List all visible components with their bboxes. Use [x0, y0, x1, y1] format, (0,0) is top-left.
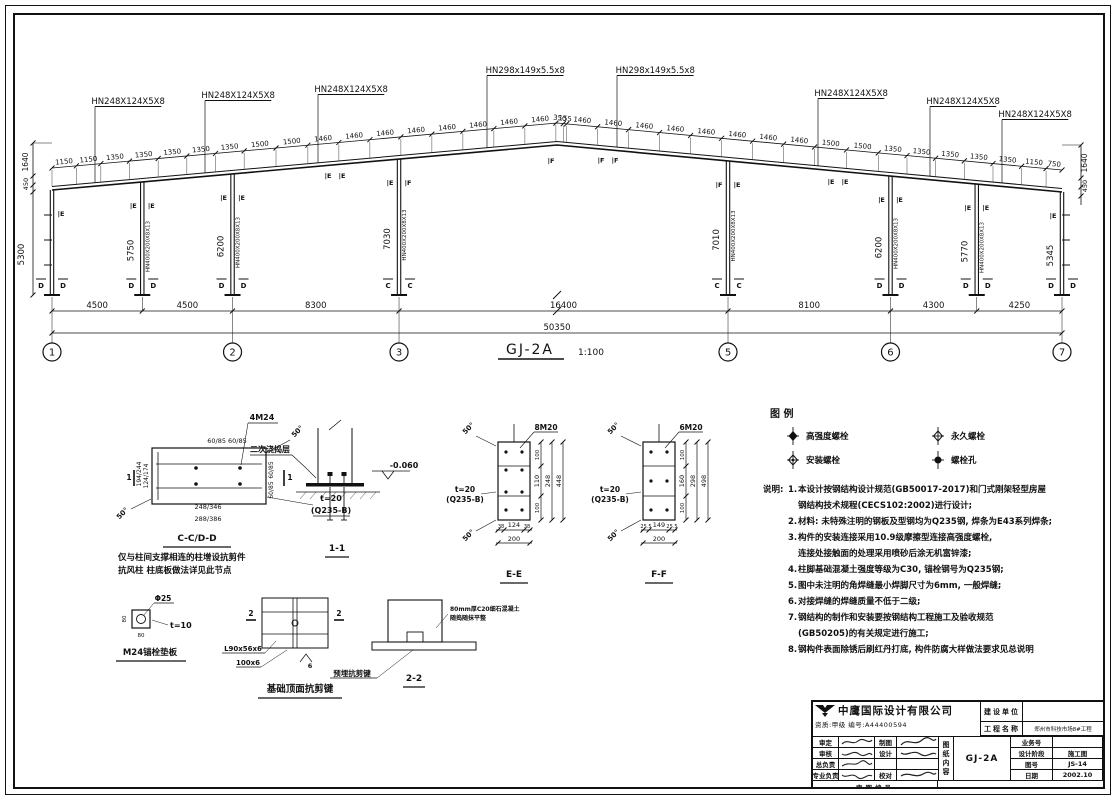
bay-dim-label: 16400 — [550, 301, 577, 311]
detail-callout: 随捣随抹平整 — [450, 614, 487, 622]
section-cut-label: 2 — [336, 609, 341, 618]
grid-bubble-label: 6 — [887, 348, 893, 359]
grid-bubble-label: 5 — [725, 348, 731, 359]
column-section-label: HN400X200X8X13 — [145, 220, 151, 272]
plate-thickness: t=20 — [455, 485, 475, 494]
column-height-dim: 6200 — [217, 236, 227, 258]
legend-item-label: 螺栓孔 — [951, 455, 977, 466]
field-label: 设计阶段 — [1011, 748, 1053, 759]
weld-size: 6 — [308, 662, 313, 670]
roof-dim-label: 1150 — [55, 157, 74, 167]
edge-dim-label: 450 — [22, 178, 30, 190]
legend-item-label: 安装螺栓 — [806, 455, 841, 466]
weld-angle: 50° — [606, 528, 621, 543]
roof-dim-label: 1150 — [1025, 158, 1044, 168]
member-mark: |E — [325, 172, 332, 181]
roof-dim-label: 1350 — [220, 142, 239, 152]
roof-dim-label: 1350 — [941, 150, 960, 160]
legend-title: 图 例 — [770, 407, 793, 420]
signature-scribble — [897, 737, 939, 748]
detail-dim: 288/386 — [194, 515, 221, 523]
detail-dim: 100 — [680, 502, 686, 513]
member-mark: |F — [612, 157, 619, 166]
roof-dim-label: 1460 — [666, 124, 685, 134]
detail-title: C-C/D-D — [177, 534, 216, 544]
member-mark: |F — [598, 157, 605, 166]
drawing-content-value: GJ-2A — [954, 737, 1011, 781]
frame-scale: 1:100 — [578, 348, 604, 358]
grid-bubble-label: 7 — [1059, 348, 1065, 359]
note-number: 2. — [788, 517, 797, 527]
detail-dim: 298 — [689, 475, 697, 487]
note-line: 图中未注明的角焊缝最小焊脚尺寸为6mm, 一般焊缝; — [798, 580, 1001, 591]
column-section-label: HN400X200X8X13 — [402, 209, 408, 261]
detail-dim: 100 — [680, 449, 686, 460]
note-number: 7. — [788, 613, 797, 623]
field-value: JS-14 — [1053, 759, 1103, 770]
roof-dim-label: 1460 — [635, 121, 654, 131]
roof-dim-label: 1500 — [282, 137, 301, 147]
member-mark: |E — [982, 204, 989, 213]
note-number: 4. — [788, 565, 797, 575]
field-value — [1053, 737, 1103, 748]
note-number: 3. — [788, 533, 797, 543]
bolt-symbol-high-strength — [789, 431, 798, 441]
bay-dim-label: 4500 — [177, 301, 199, 311]
detail-title: M24锚栓垫板 — [123, 647, 178, 658]
total-dim-label: 50350 — [543, 323, 570, 333]
beam-size-callout: HN248X124X5X8 — [91, 97, 164, 107]
detail-dim: 60/85 — [268, 481, 275, 498]
detail-dim: 194/244 — [136, 461, 143, 486]
roof-dim-label: 1500 — [821, 139, 840, 149]
beam-size-callout: HN298x149x5.5x8 — [486, 66, 565, 76]
roof-dim-label: 1460 — [376, 128, 395, 138]
field-value: 2002.10 — [1053, 770, 1103, 781]
roof-dim-label: 155 — [558, 114, 572, 123]
frame-title: GJ-2A — [506, 342, 554, 358]
detail-dim: 38 — [498, 524, 504, 530]
steel-grade: (Q235-B) — [446, 495, 484, 504]
company-logo-eagle-icon — [815, 704, 835, 717]
company-name: 中鹰国际设计有限公司 — [838, 703, 953, 718]
beam-size-callout: HN248X124X5X8 — [814, 89, 887, 99]
member-mark: |E — [387, 179, 394, 188]
role-label — [875, 759, 897, 770]
base-mark: C — [385, 282, 390, 290]
base-mark: C — [736, 282, 741, 290]
section-cut-label: 2 — [248, 609, 253, 618]
column-height-dim: 7010 — [712, 229, 722, 251]
grid-bubble-label: 2 — [229, 348, 235, 359]
weld-angle: 50° — [115, 506, 130, 521]
project-value: 郑州市科技市场8#工程 — [1023, 722, 1103, 736]
member-mark: |E — [130, 202, 137, 211]
beam-size-callout: HN248X124X5X8 — [998, 110, 1071, 120]
detail-dim: 80 — [122, 615, 128, 622]
member-mark: |E — [58, 210, 65, 219]
notes-header: 说明: — [763, 484, 783, 495]
edge-dim-label: 1640 — [21, 152, 30, 171]
base-mark: D — [963, 282, 969, 290]
member-mark: |E — [878, 196, 885, 205]
column-section-label: HN400X200X8X13 — [980, 222, 986, 274]
roof-dim-label: 1460 — [531, 115, 550, 125]
title-block-grid: 审定 制图 图纸内容 GJ-2A 业务号 审核 设计 设计阶段 施工图 总负责 … — [813, 737, 1103, 781]
member-mark: |E — [828, 178, 835, 187]
detail-dim: 100 — [535, 502, 541, 513]
weld-angle: 50° — [461, 421, 476, 436]
detail-dim: 80 — [138, 633, 145, 639]
note-line: 连接处接触面的处理采用喷砂后涂无机富锌漆; — [798, 548, 971, 559]
section-cut-label: 1 — [126, 473, 131, 482]
base-mark: D — [60, 282, 66, 290]
note-number: 8. — [788, 645, 797, 655]
column-height-dim: 5770 — [961, 241, 971, 263]
bay-dim-label: 8100 — [798, 301, 820, 311]
roof-dim-label: 1350 — [912, 147, 931, 157]
base-mark: D — [241, 282, 247, 290]
note-line: 对接焊缝的焊缝质量不低于二级; — [798, 596, 920, 607]
column-height-dim: 5300 — [17, 244, 27, 266]
detail-title: 基础顶面抗剪键 — [266, 683, 334, 695]
detail-callout: 二次浇捣层 — [250, 444, 290, 454]
detail-dim: 25.5 — [640, 524, 651, 530]
roof-dim-label: 1460 — [469, 120, 488, 130]
drawing-sheet: 1150115013501350135013501350150015001460… — [0, 0, 1116, 800]
detail-dim: 25.5 — [666, 524, 677, 530]
detail-callout: Φ25 — [155, 594, 172, 603]
column-height-dim: 5345 — [1046, 245, 1056, 267]
role-label: 校对 — [875, 770, 897, 781]
detail-callout: 6M20 — [679, 423, 702, 432]
plate-thickness: t=20 — [600, 485, 620, 494]
plate-thickness: t=20 — [320, 494, 342, 503]
detail-title: 1-1 — [329, 544, 345, 554]
plate-thickness: t=10 — [170, 621, 192, 630]
note-line: 钢构件表面除锈后刷红丹打底, 构件防腐大样做法要求见总说明 — [798, 644, 1034, 655]
field-label: 业务号 — [1011, 737, 1053, 748]
roof-dim-label: 1460 — [500, 117, 519, 127]
signature-scribble — [839, 737, 875, 748]
weld-angle: 50° — [290, 424, 305, 439]
detail-dim: 248/346 — [194, 503, 221, 511]
detail-dim: 100 — [535, 449, 541, 460]
detail-title: F-F — [651, 570, 667, 580]
note-number: 5. — [788, 581, 797, 591]
member-mark: |E — [964, 204, 971, 213]
review-number-label: 审图编号 — [813, 781, 938, 787]
detail-dim: 149 — [653, 521, 665, 529]
steel-grade: (Q235-B) — [311, 506, 351, 515]
roof-dim-label: 1350 — [884, 144, 903, 154]
beam-size-callout: HN248X124X5X8 — [201, 91, 274, 101]
elevation-value: -0.060 — [390, 461, 419, 470]
column-section-label: HN400X200X8X13 — [731, 210, 737, 262]
column-section-label: HN400X200X8X13 — [236, 216, 242, 268]
roof-dim-label: 1350 — [163, 147, 182, 157]
signature-scribble — [839, 759, 875, 770]
roof-dim-label: 1350 — [192, 145, 211, 155]
signature-scribble — [839, 770, 875, 781]
project-label: 工程名称 — [981, 722, 1023, 736]
detail-dim: 248 — [544, 475, 552, 487]
detail-callout: 80mm厚C20细石混凝土 — [450, 605, 520, 613]
member-mark: |E — [148, 202, 155, 211]
legend-item-label: 永久螺栓 — [950, 431, 986, 442]
member-mark: |E — [1050, 212, 1057, 221]
title-block: 中鹰国际设计有限公司 资质:甲级 编号:A44400594 建设单位 工程名称 … — [811, 700, 1103, 787]
member-mark: |F — [716, 181, 723, 190]
grid-bubble-label: 3 — [396, 348, 402, 359]
design-company-cell: 中鹰国际设计有限公司 资质:甲级 编号:A44400594 — [813, 702, 981, 736]
roof-dim-label: 1350 — [998, 155, 1017, 165]
edge-dim-label: 450 — [1081, 180, 1089, 192]
base-mark: D — [128, 282, 134, 290]
detail-dim: 38 — [524, 524, 530, 530]
base-mark: D — [899, 282, 905, 290]
weld-angle: 50° — [461, 528, 476, 543]
roof-dim-label: 1350 — [106, 153, 125, 163]
signature-scribble — [897, 759, 939, 770]
note-line: 钢结构的制作和安装要按钢结构工程施工及验收规范 — [798, 612, 994, 623]
member-mark: |E — [339, 172, 346, 181]
roof-dim-label: 1460 — [407, 126, 426, 136]
cad-drawing-canvas: 1150115013501350135013501350150015001460… — [0, 0, 1116, 800]
member-mark: |E — [238, 194, 245, 203]
member-mark: |E — [896, 196, 903, 205]
member-mark: |F — [405, 179, 412, 188]
role-label: 总负责 — [813, 759, 839, 770]
detail-dim: 200 — [508, 535, 520, 543]
detail-dim: 124/174 — [143, 463, 150, 488]
bolt-hole-symbol — [935, 457, 942, 464]
detail-dim: 60/85 60/85 — [207, 437, 247, 445]
content-label: 图纸内容 — [939, 737, 954, 781]
bay-dim-label: 4500 — [86, 301, 108, 311]
edge-dim-label: 1640 — [1080, 153, 1089, 172]
weld-angle: 50° — [606, 421, 621, 436]
detail-dim: 124 — [508, 521, 520, 529]
role-label: 专业负责 — [813, 770, 839, 781]
detail-note: 抗风柱 柱底板做法详见此节点 — [118, 565, 232, 576]
roof-dim-label: 1500 — [251, 140, 270, 150]
grid-bubble-label: 1 — [49, 348, 55, 359]
note-line: 柱脚基础混凝土强度等级为C30, 锚栓钢号为Q235钢; — [798, 564, 1004, 575]
column-height-dim: 5750 — [126, 240, 136, 262]
column-section-label: HN400X200X8X13 — [893, 217, 899, 269]
roof-dim-label: 1460 — [728, 130, 747, 140]
base-mark: D — [150, 282, 156, 290]
field-label: 日期 — [1011, 770, 1053, 781]
detail-dim: 160 — [678, 475, 686, 487]
detail-dim: 110 — [533, 475, 541, 487]
roof-dim-label: 1460 — [345, 131, 364, 141]
roof-dim-label: 1460 — [438, 123, 457, 133]
field-value: 施工图 — [1053, 748, 1103, 759]
detail-callout: L90x56x6 — [224, 645, 262, 653]
beam-size-callout: HN248X124X5X8 — [926, 97, 999, 107]
roof-dim-label: 1350 — [970, 152, 989, 162]
base-mark: D — [1048, 282, 1054, 290]
roof-dim-label: 1500 — [853, 142, 872, 152]
note-number: 1. — [788, 485, 797, 495]
detail-dim: 200 — [653, 535, 665, 543]
roof-dim-label: 1460 — [573, 116, 592, 126]
note-line: 材料: 未特殊注明的钢板及型钢均为Q235钢, 焊条为E43系列焊条; — [797, 516, 1052, 527]
bay-dim-label: 8300 — [305, 301, 327, 311]
roof-dim-label: 1350 — [134, 150, 153, 160]
column-height-dim: 6200 — [874, 237, 884, 259]
legend-item-label: 高强度螺栓 — [806, 431, 849, 442]
base-mark: C — [407, 282, 412, 290]
beam-size-callout: HN298x149x5.5x8 — [616, 66, 695, 76]
note-line: (GB50205)的有关规定进行施工; — [798, 628, 929, 639]
bay-dim-label: 4250 — [1009, 301, 1031, 311]
member-mark: |F — [548, 157, 555, 166]
detail-dim: 448 — [555, 475, 563, 487]
detail-callout: 100x6 — [236, 659, 260, 667]
bay-dim-label: 4300 — [923, 301, 945, 311]
section-cut-label: 1 — [287, 473, 292, 482]
role-label: 审核 — [813, 748, 839, 759]
base-mark: C — [714, 282, 719, 290]
roof-dim-label: 1460 — [759, 133, 778, 143]
signature-scribble — [839, 748, 875, 759]
base-mark: D — [1070, 282, 1076, 290]
member-mark: |E — [842, 178, 849, 187]
detail-callout: 8M20 — [534, 423, 557, 432]
detail-note: 仅与柱间支撑相连的柱增设抗剪件 — [117, 552, 246, 563]
roof-dim-label: 1460 — [314, 134, 333, 144]
note-line: 构件的安装连接采用10.9级摩擦型连接高强度螺栓, — [798, 532, 992, 543]
owner-label: 建设单位 — [981, 702, 1023, 722]
field-label: 图号 — [1011, 759, 1053, 770]
role-label: 审定 — [813, 737, 839, 748]
detail-callout: 4M24 — [250, 413, 275, 422]
column-height-dim: 7030 — [383, 228, 393, 250]
note-line: 钢结构技术规程(CECS102:2002)进行设计; — [798, 500, 972, 511]
detail-title: E-E — [506, 570, 522, 580]
base-mark: D — [985, 282, 991, 290]
base-mark: D — [219, 282, 225, 290]
company-cert: 资质:甲级 编号:A44400594 — [815, 719, 978, 729]
roof-dim-label: 1460 — [697, 127, 716, 137]
role-label: 设计 — [875, 748, 897, 759]
roof-dim-label: 1460 — [790, 136, 809, 146]
member-mark: |E — [220, 194, 227, 203]
detail-dim: 498 — [700, 475, 708, 487]
detail-title: 2-2 — [406, 674, 422, 684]
signature-scribble — [897, 770, 939, 781]
role-label: 制图 — [875, 737, 897, 748]
title-block-bottom-row: 审图编号 — [813, 781, 1103, 787]
note-line: 本设计按钢结构设计规范(GB50017-2017)和门式刚架轻型房屋 — [798, 484, 1046, 495]
beam-size-callout: HN248X124X5X8 — [314, 85, 387, 95]
signature-scribble — [897, 748, 939, 759]
note-number: 6. — [788, 597, 797, 607]
steel-grade: (Q235-B) — [591, 495, 629, 504]
detail-dim: 60/85 — [268, 461, 275, 478]
roof-dim-label: 750 — [1047, 160, 1061, 169]
detail-callout: 预埋抗剪键 — [333, 668, 371, 678]
member-mark: |E — [734, 181, 741, 190]
owner-value — [1023, 702, 1103, 722]
base-mark: D — [38, 282, 44, 290]
roof-dim-label: 1460 — [604, 118, 623, 128]
title-block-header: 中鹰国际设计有限公司 资质:甲级 编号:A44400594 建设单位 工程名称 … — [813, 702, 1103, 737]
base-mark: D — [877, 282, 883, 290]
